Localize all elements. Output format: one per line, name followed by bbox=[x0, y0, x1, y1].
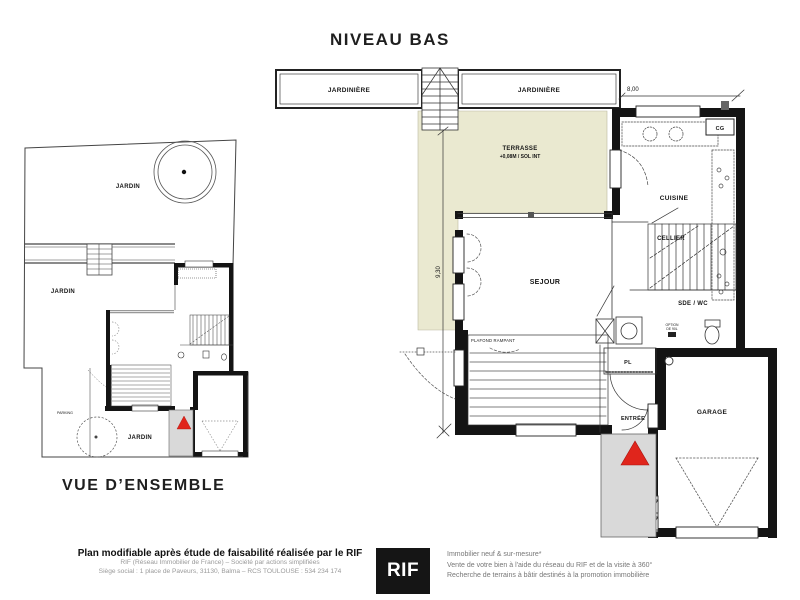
exterior-stairs bbox=[422, 68, 458, 130]
jardiniere-left-label: JARDINIÈRE bbox=[328, 85, 371, 94]
rif-logo: RIF bbox=[376, 548, 430, 594]
bay-glazing bbox=[458, 212, 612, 318]
garage-door-swing bbox=[676, 458, 758, 527]
footer-sub-line2: Siège social : 1 place de Paveurs, 31130… bbox=[55, 568, 385, 577]
footer-right-line2: Vente de votre bien à l'aide du réseau d… bbox=[447, 561, 652, 572]
cuisine-label: CUISINE bbox=[660, 195, 689, 202]
option-note-line2: DE 90L bbox=[666, 327, 677, 331]
door-swings-sejour bbox=[467, 234, 520, 352]
kitchen-fittings bbox=[619, 122, 734, 300]
terrace-area bbox=[418, 111, 607, 330]
garage-label: GARAGE bbox=[697, 409, 728, 416]
sde-wc-label: SDE / WC bbox=[678, 301, 708, 307]
option-box bbox=[668, 332, 676, 337]
terrasse-note: +0,08M / SOL INT bbox=[500, 154, 541, 160]
cg-label: CG bbox=[716, 126, 725, 132]
jardin-bottom-label: JARDIN bbox=[128, 435, 152, 441]
footer-right-line3: Recherche de terrains à bâtir destinés à… bbox=[447, 571, 652, 582]
dimension-height-label: 9,30 bbox=[436, 266, 442, 278]
cellier-label: CELLIER bbox=[657, 236, 685, 242]
rif-logo-text: RIF bbox=[387, 560, 419, 582]
parking-label: PARKING bbox=[57, 411, 73, 415]
floor-plan-page: { "page": { "niveau_bas_title": "NIVEAU … bbox=[0, 0, 800, 600]
main-floor-plan: JARDINIÈRE JARDINIÈRE 8,00 9,30 bbox=[276, 68, 777, 538]
jardin-top-label: JARDIN bbox=[116, 184, 140, 190]
entry-porch bbox=[601, 434, 656, 537]
footer-legal-block: Plan modifiable après étude de faisabili… bbox=[55, 548, 385, 576]
footer-right-line1: Immobilier neuf & sur-mesure* bbox=[447, 550, 652, 561]
plan-canvas: JARDINIÈRE JARDINIÈRE 8,00 9,30 bbox=[0, 0, 800, 600]
footer-services-block: Immobilier neuf & sur-mesure* Vente de v… bbox=[447, 550, 652, 582]
jardiniere-right-label: JARDINIÈRE bbox=[518, 85, 561, 94]
terrasse-label: TERRASSE bbox=[502, 146, 537, 152]
jardin-left-label: JARDIN bbox=[51, 289, 75, 295]
plafond-rampant-label: PLAFOND RAMPANT bbox=[471, 338, 515, 343]
dimension-width-label: 8,00 bbox=[627, 87, 639, 93]
entree-label: ENTRÉE bbox=[621, 414, 645, 422]
overview-plan: PARKING JARDIN JARDIN JARDIN bbox=[24, 140, 248, 457]
overview-porch bbox=[169, 410, 193, 456]
footer-sub-line1: RIF (Réseau Immobilier de France) – Soci… bbox=[55, 559, 385, 568]
plafond-rampant-area bbox=[468, 335, 608, 425]
pl-label: PL bbox=[624, 360, 632, 366]
garage-post bbox=[665, 357, 673, 365]
bathroom-fixtures bbox=[596, 286, 720, 344]
sejour-label: SEJOUR bbox=[530, 279, 561, 286]
exterior-door-swing bbox=[400, 348, 455, 399]
footer-bold-line: Plan modifiable après étude de faisabili… bbox=[55, 548, 385, 559]
